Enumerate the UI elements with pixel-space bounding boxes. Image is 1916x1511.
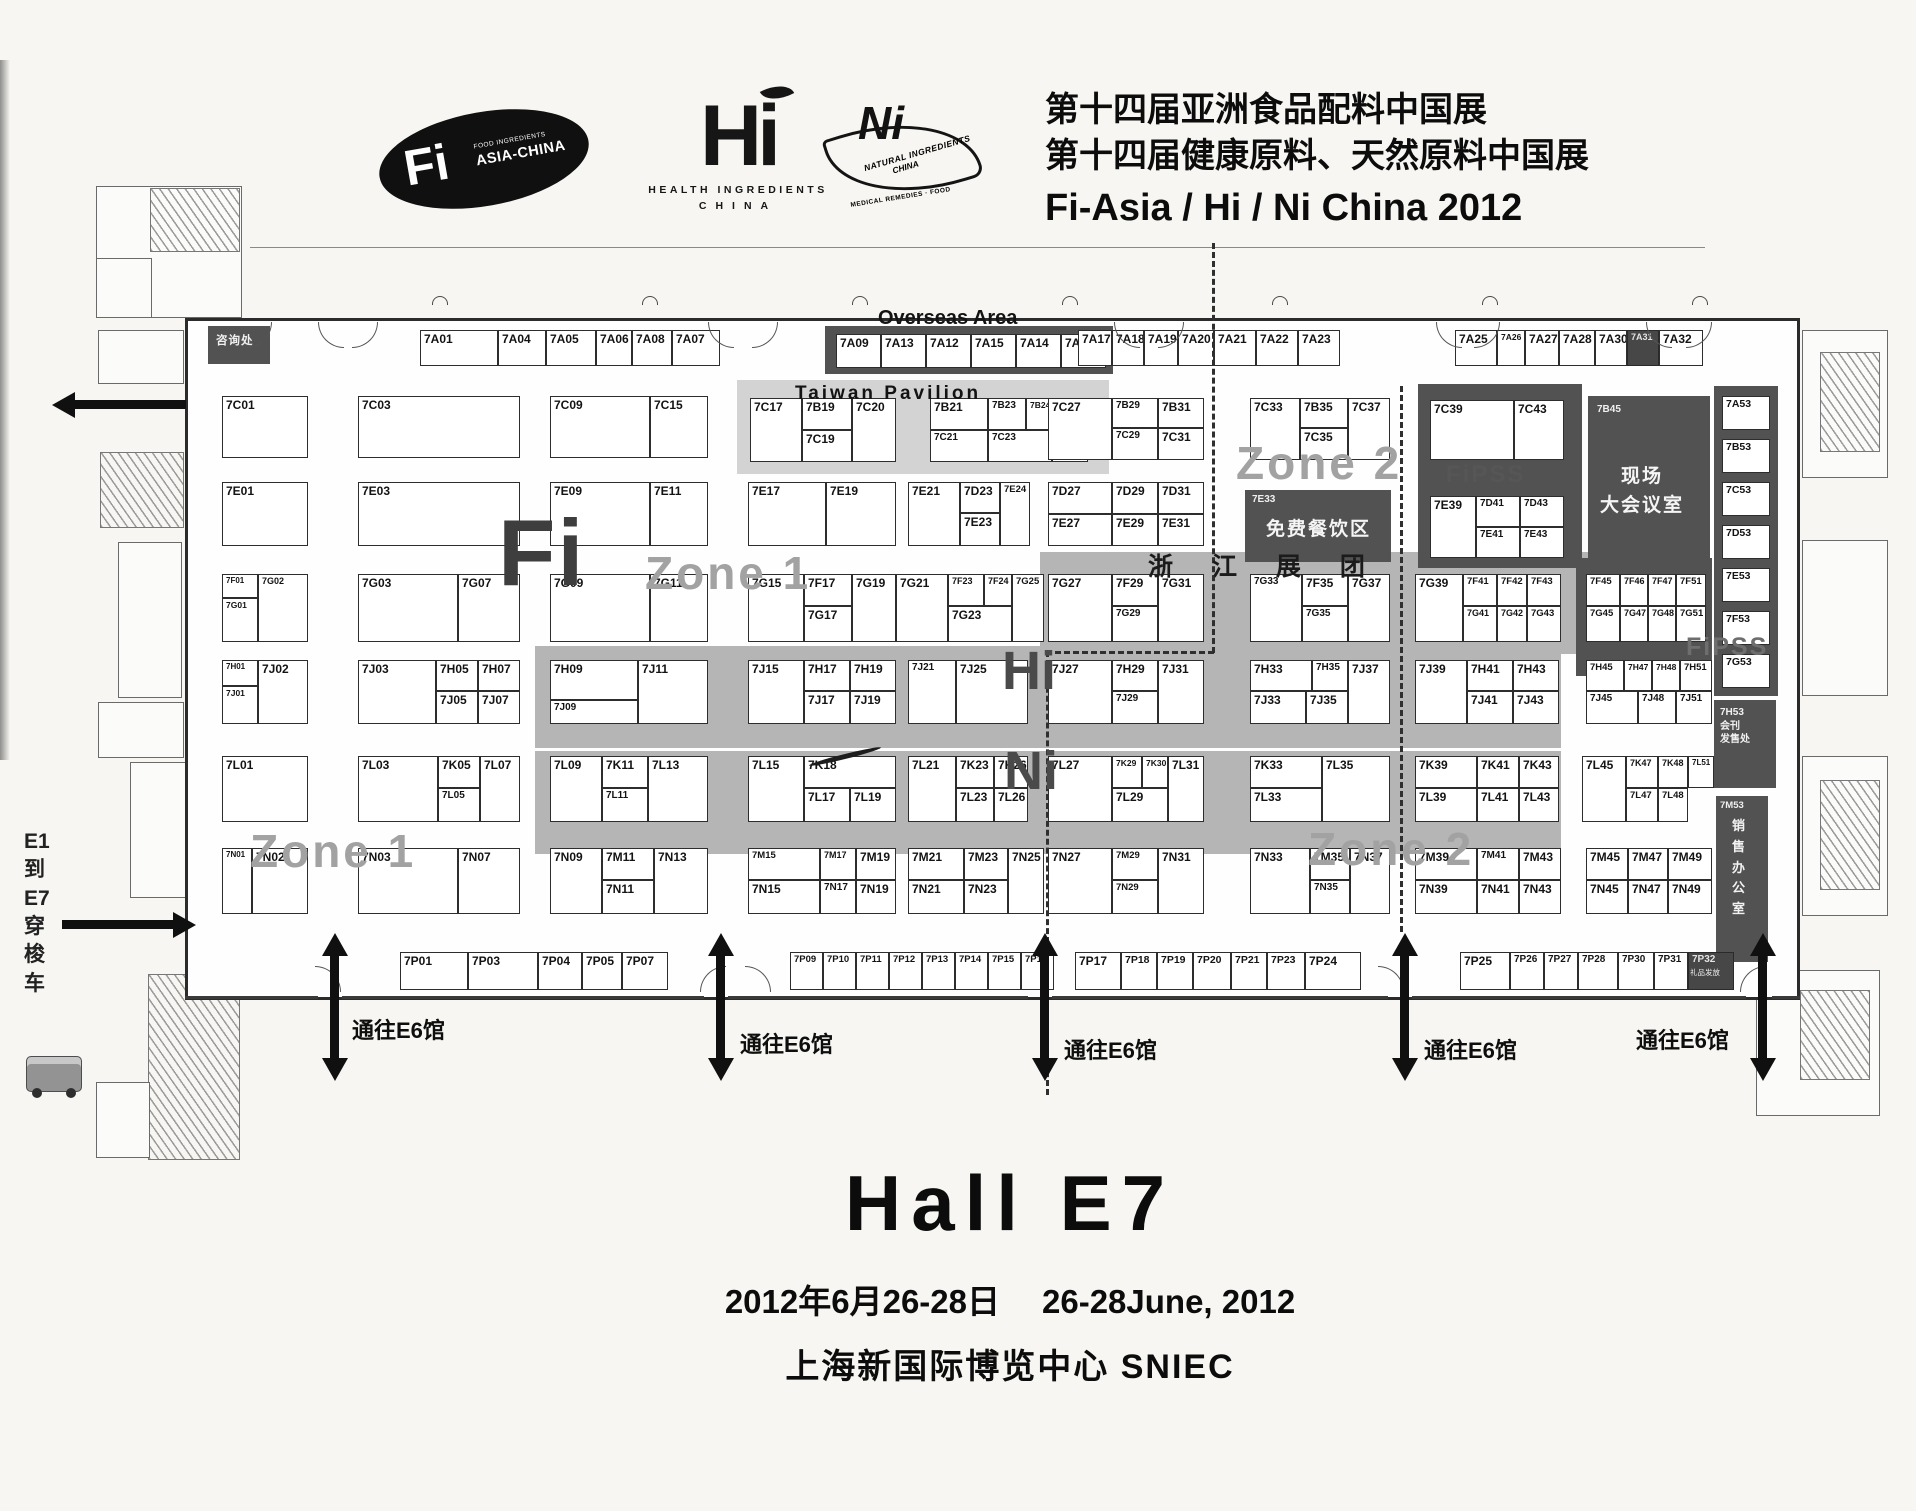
scanned-floorplan-page: Fi FOOD INGREDIENTS ASIA-CHINA Hi HEALTH…: [0, 0, 1916, 1511]
booth-7B31: 7B31: [1158, 398, 1204, 428]
booth-7H41: 7H41: [1467, 660, 1513, 691]
booth-7E24: 7E24: [1000, 482, 1030, 546]
ni-zone-label: Ni: [1004, 744, 1058, 798]
booth-7P24: 7P24: [1305, 952, 1361, 990]
booth-7A21: 7A21: [1214, 330, 1256, 366]
booth-7H07: 7H07: [478, 660, 520, 691]
carc-decor: [1062, 296, 1078, 305]
booth-7M21: 7M21: [908, 848, 964, 880]
footer: Hall E7 2012年6月26-28日26-28June, 2012 上海新…: [640, 1158, 1380, 1388]
booth-7J37: 7J37: [1348, 660, 1390, 724]
booth-7F41: 7F41: [1463, 574, 1497, 606]
booth-7N27: 7N27: [1048, 848, 1112, 914]
dashh-decor: [1046, 651, 1214, 655]
booth-7N07: 7N07: [458, 848, 520, 914]
booth-7G35: 7G35: [1302, 606, 1348, 642]
booth-7L09: 7L09: [550, 756, 602, 822]
booth-7C23: 7C23: [988, 430, 1052, 462]
e6-arrow-1: [330, 942, 339, 1072]
booth-7C15: 7C15: [650, 396, 708, 458]
booth-7A01: 7A01: [420, 330, 498, 366]
booth-7E01: 7E01: [222, 482, 308, 546]
booth-7A22: 7A22: [1256, 330, 1298, 366]
booth-7C39: 7C39: [1430, 400, 1514, 460]
booth-7H19: 7H19: [850, 660, 896, 691]
booth-7A05: 7A05: [546, 330, 596, 366]
booth-7P30: 7P30: [1618, 952, 1654, 990]
e6-arrow-3: [1040, 942, 1049, 1072]
booth-7F24: 7F24: [984, 574, 1012, 606]
carc-decor: [1482, 296, 1498, 305]
booth-7E29: 7E29: [1112, 514, 1158, 546]
booth-7C20: 7C20: [852, 398, 896, 462]
booth-7P01: 7P01: [400, 952, 468, 990]
booth-7E23: 7E23: [960, 513, 1000, 546]
wseg-decor: [1412, 996, 1746, 999]
shuttle-arrow-west: [62, 400, 186, 409]
booth-7B35: 7B35: [1300, 398, 1348, 428]
booth-7C19: 7C19: [802, 430, 852, 462]
booth-7G47: 7G47: [1620, 606, 1648, 642]
to-hall-e6-label-5: 通往E6馆: [1636, 1028, 1729, 1055]
booth-7B45-label: 7B45: [1597, 404, 1621, 416]
booth-7N13: 7N13: [654, 848, 708, 914]
booth-7K11: 7K11: [602, 756, 648, 788]
booth-7D31: 7D31: [1158, 482, 1204, 514]
ob-decor: [98, 702, 184, 758]
booth-7C31: 7C31: [1158, 428, 1204, 460]
booth-7G33: 7G33: [1250, 574, 1302, 642]
zhejiang-delegation-label: 浙 江 展 团: [1148, 552, 1381, 583]
booth-7E41: 7E41: [1476, 527, 1520, 558]
booth-7P03: 7P03: [468, 952, 538, 990]
booth-7K39: 7K39: [1415, 756, 1477, 788]
sales-office-label: 销 售 办 公 室: [1732, 816, 1745, 920]
gift-desk-label: 礼品发放: [1690, 968, 1720, 977]
booth-7H48: 7H48: [1652, 660, 1680, 691]
booth-7J21: 7J21: [908, 660, 956, 724]
wseg-decor: [1052, 996, 1388, 999]
booth-7G29: 7G29: [1112, 606, 1158, 642]
booth-7A27: 7A27: [1525, 330, 1559, 366]
booth-7E53: 7E53: [1722, 568, 1770, 602]
booth-7E31: 7E31: [1158, 514, 1204, 546]
booth-7P31: 7P31: [1654, 952, 1688, 990]
booth-7P10: 7P10: [823, 952, 856, 990]
booth-7L05: 7L05: [438, 788, 480, 822]
booth-7H45: 7H45: [1586, 660, 1624, 691]
booth-7L35: 7L35: [1322, 756, 1390, 822]
booth-7D23: 7D23: [960, 482, 1000, 513]
booth-7G25: 7G25: [1012, 574, 1044, 642]
booth-7M19: 7M19: [856, 848, 896, 880]
booth-7E11: 7E11: [650, 482, 708, 546]
booth-7E33-label: 7E33: [1252, 494, 1275, 506]
booth-7L23: 7L23: [956, 788, 994, 822]
booth-7K30: 7K30: [1142, 756, 1168, 788]
booth-7N35: 7N35: [1310, 880, 1350, 914]
booth-7P12: 7P12: [889, 952, 922, 990]
ob-decor: [130, 762, 186, 898]
booth-7P09: 7P09: [790, 952, 823, 990]
booth-7J09: 7J09: [550, 700, 638, 724]
fi-zone-label: Fi: [498, 506, 586, 600]
booth-7K48: 7K48: [1658, 756, 1688, 788]
booth-7P14: 7P14: [955, 952, 988, 990]
booth-7N49: 7N49: [1668, 880, 1712, 914]
booth-7C17: 7C17: [750, 398, 802, 462]
booth-7N31: 7N31: [1158, 848, 1204, 914]
ob-decor: [96, 258, 152, 318]
booth-7A13: 7A13: [881, 334, 926, 368]
booth-7P23: 7P23: [1267, 952, 1305, 990]
booth-7N45: 7N45: [1586, 880, 1628, 914]
booth-7L21: 7L21: [908, 756, 956, 822]
booth-7M41: 7M41: [1477, 848, 1519, 880]
booth-7L48: 7L48: [1658, 788, 1688, 822]
booth-7N17: 7N17: [820, 880, 856, 914]
booth-7C01: 7C01: [222, 396, 308, 458]
booth-7A26: 7A26: [1497, 330, 1525, 366]
booth-7P26: 7P26: [1510, 952, 1544, 990]
booth-7K41: 7K41: [1477, 756, 1519, 788]
booth-7A15: 7A15: [971, 334, 1016, 368]
booth-7J48: 7J48: [1638, 691, 1676, 724]
zone1-lower-label: Zone 1: [250, 828, 416, 874]
thin-decor: [250, 247, 1705, 249]
booth-7C53: 7C53: [1722, 482, 1770, 516]
booth-7H35: 7H35: [1312, 660, 1348, 691]
booth-7C03: 7C03: [358, 396, 520, 458]
booth-7K33: 7K33: [1250, 756, 1322, 788]
hatch-decor: [100, 452, 184, 528]
booth-7P28: 7P28: [1578, 952, 1618, 990]
booth-7L51: 7L51: [1688, 756, 1714, 788]
booth-7N29: 7N29: [1112, 880, 1158, 914]
booth-7E03: 7E03: [358, 482, 520, 546]
booth-7K47: 7K47: [1626, 756, 1658, 788]
booth-7L15: 7L15: [748, 756, 804, 822]
booth-7P15: 7P15: [988, 952, 1021, 990]
booth-7H47: 7H47: [1624, 660, 1652, 691]
booth-7A09: 7A09: [836, 334, 881, 368]
booth-7P19: 7P19: [1157, 952, 1193, 990]
booth-7D41: 7D41: [1476, 496, 1520, 527]
booth-7J02: 7J02: [258, 660, 308, 724]
booth-7N11: 7N11: [602, 880, 654, 914]
booth-7M15: 7M15: [748, 848, 820, 880]
booth-7M47: 7M47: [1628, 848, 1668, 880]
wseg-decor: [185, 996, 318, 999]
e6-arrow-4: [1400, 942, 1409, 1072]
booth-7C43: 7C43: [1514, 400, 1564, 460]
booth-7F43: 7F43: [1527, 574, 1561, 606]
booth-7B29: 7B29: [1112, 398, 1158, 428]
booth-7C29: 7C29: [1112, 428, 1158, 460]
booth-7F45: 7F45: [1586, 574, 1620, 606]
booth-7L13: 7L13: [648, 756, 708, 822]
booth-7J41: 7J41: [1467, 691, 1513, 724]
booth-7A17: 7A17: [1078, 330, 1112, 366]
ob-decor: [1802, 540, 1888, 696]
date-en: 26-28June, 2012: [1042, 1283, 1295, 1320]
booth-7J27: 7J27: [1048, 660, 1112, 724]
booth-7K05: 7K05: [438, 756, 480, 788]
booth-7P04: 7P04: [538, 952, 582, 990]
booth-7G31: 7G31: [1158, 574, 1204, 642]
booth-7L47: 7L47: [1626, 788, 1658, 822]
date-line: 2012年6月26-28日26-28June, 2012: [640, 1275, 1380, 1323]
booth-7G39: 7G39: [1415, 574, 1463, 642]
booth-7H05: 7H05: [436, 660, 478, 691]
carc-decor: [852, 296, 868, 305]
booth-7M45: 7M45: [1586, 848, 1628, 880]
fipss-lower-label: FiPSS: [1686, 632, 1768, 663]
booth-7H33: 7H33: [1250, 660, 1312, 691]
booth-7M43: 7M43: [1519, 848, 1561, 880]
booth-7N39: 7N39: [1415, 880, 1477, 914]
to-hall-e6-label-1: 通往E6馆: [352, 1018, 445, 1045]
booth-7P07: 7P07: [622, 952, 668, 990]
fipss-upper-label: FiPSS: [1446, 460, 1525, 489]
date-cn: 2012年6月26-28日: [725, 1283, 1000, 1320]
bus-decor: [26, 1056, 82, 1092]
overseas-area-label: Overseas Area: [878, 306, 1017, 330]
booth-7L41: 7L41: [1477, 788, 1519, 822]
booth-7E43: 7E43: [1520, 527, 1564, 558]
booth-7J03: 7J03: [358, 660, 436, 724]
booth-7G42: 7G42: [1497, 606, 1527, 642]
booth-7A30: 7A30: [1595, 330, 1627, 366]
booth-7E27: 7E27: [1048, 514, 1112, 546]
hatch-decor: [148, 974, 240, 1160]
booth-7A08: 7A08: [632, 330, 672, 366]
booth-7J45: 7J45: [1586, 691, 1638, 724]
booth-7H09: 7H09: [550, 660, 638, 700]
e6-arrow-5: [1758, 942, 1767, 1072]
booth-7L45: 7L45: [1582, 756, 1626, 822]
booth-7N19: 7N19: [856, 880, 896, 914]
booth-7N47: 7N47: [1628, 880, 1668, 914]
booth-7A04: 7A04: [498, 330, 546, 366]
booth-7H51: 7H51: [1680, 660, 1712, 691]
hall-title: Hall E7: [640, 1158, 1380, 1249]
booth-7L07: 7L07: [480, 756, 520, 822]
booth-7F46: 7F46: [1620, 574, 1648, 606]
booth-7L29: 7L29: [1112, 788, 1168, 822]
to-hall-e6-label-3: 通往E6馆: [1064, 1038, 1157, 1065]
booth-7B23: 7B23: [988, 398, 1026, 430]
booth-7K23: 7K23: [956, 756, 994, 788]
booth-7N33: 7N33: [1250, 848, 1310, 914]
booth-7H29: 7H29: [1112, 660, 1158, 691]
carc-decor: [1272, 296, 1288, 305]
booth-7J43: 7J43: [1513, 691, 1559, 724]
booth-7N25: 7N25: [1008, 848, 1044, 914]
booth-7C27: 7C27: [1048, 398, 1112, 460]
booth-7B53: 7B53: [1722, 439, 1770, 473]
booth-7N21: 7N21: [908, 880, 964, 914]
booth-7D27: 7D27: [1048, 482, 1112, 514]
hatch-decor: [150, 188, 240, 252]
booth-7J39: 7J39: [1415, 660, 1467, 724]
booth-7M11: 7M11: [602, 848, 654, 880]
booth-7N01: 7N01: [222, 848, 252, 914]
booth-7N09: 7N09: [550, 848, 602, 914]
booth-7A14: 7A14: [1016, 334, 1061, 368]
booth-7G21: 7G21: [896, 574, 948, 642]
booth-7P20: 7P20: [1193, 952, 1231, 990]
booth-7F01: 7F01: [222, 574, 258, 598]
booth-7M29: 7M29: [1112, 848, 1158, 880]
booth-7G02: 7G02: [258, 574, 308, 642]
booth-7A12: 7A12: [926, 334, 971, 368]
zone2-lower-label: Zone 2: [1308, 826, 1474, 872]
booth-7N23: 7N23: [964, 880, 1008, 914]
booth-7J51: 7J51: [1676, 691, 1712, 724]
booth-7D43: 7D43: [1520, 496, 1564, 527]
booth-7P21: 7P21: [1231, 952, 1267, 990]
booth-7L43: 7L43: [1519, 788, 1559, 822]
booth-7G17: 7G17: [804, 606, 852, 642]
booth-7G03: 7G03: [358, 574, 458, 642]
carc-decor: [1692, 296, 1708, 305]
booth-7J17: 7J17: [804, 691, 850, 724]
booth-7H43: 7H43: [1513, 660, 1559, 691]
booth-7E21: 7E21: [908, 482, 960, 546]
shuttle-bus-label: E1 到 E7 穿 梭 车: [24, 828, 50, 998]
to-hall-e6-label-2: 通往E6馆: [740, 1032, 833, 1059]
booth-7G43: 7G43: [1527, 606, 1561, 642]
booth-7N41: 7N41: [1477, 880, 1519, 914]
hatch-decor: [1820, 780, 1880, 890]
booth-7A06: 7A06: [596, 330, 632, 366]
booth-7F47: 7F47: [1648, 574, 1676, 606]
to-hall-e6-label-4: 通往E6馆: [1424, 1038, 1517, 1065]
dashv-decor: [1212, 243, 1216, 653]
booth-7J05: 7J05: [436, 691, 478, 724]
booth-7D29: 7D29: [1112, 482, 1158, 514]
edge-decor: [0, 60, 10, 760]
booth-7F23: 7F23: [948, 574, 984, 606]
carc-decor: [432, 296, 448, 305]
booth-7J31: 7J31: [1158, 660, 1204, 724]
booth-7E17: 7E17: [748, 482, 826, 546]
hi-zone-label: Hi: [1002, 644, 1056, 698]
booth-7P11: 7P11: [856, 952, 889, 990]
booth-7M49: 7M49: [1668, 848, 1712, 880]
booth-7G27: 7G27: [1048, 574, 1112, 642]
booth-7K43: 7K43: [1519, 756, 1559, 788]
booth-7L17: 7L17: [804, 788, 850, 822]
e6-arrow-2: [716, 942, 725, 1072]
booth-7C21: 7C21: [930, 430, 988, 462]
booth-7P25: 7P25: [1460, 952, 1510, 990]
booth-7G41: 7G41: [1463, 606, 1497, 642]
booth-7P18: 7P18: [1121, 952, 1157, 990]
ob-decor: [118, 542, 182, 698]
carc-decor: [642, 296, 658, 305]
booth-7L01: 7L01: [222, 756, 308, 822]
booth-7L39: 7L39: [1415, 788, 1477, 822]
booth-7A23: 7A23: [1298, 330, 1340, 366]
conference-room-label: 现场 大会议室: [1600, 462, 1684, 521]
booth-7G48: 7G48: [1648, 606, 1676, 642]
booth-7P17: 7P17: [1075, 952, 1121, 990]
booth-7C09: 7C09: [550, 396, 650, 458]
zone1-upper-label: Zone 1: [645, 550, 811, 596]
booth-7J01: 7J01: [222, 686, 258, 724]
booth-7A28: 7A28: [1559, 330, 1595, 366]
booth-7L33: 7L33: [1250, 788, 1322, 822]
booth-7N15: 7N15: [748, 880, 820, 914]
booth-7G19: 7G19: [852, 574, 896, 642]
hatch-decor: [1820, 352, 1880, 452]
booth-7E19: 7E19: [826, 482, 896, 546]
booth-7F42: 7F42: [1497, 574, 1527, 606]
ob-decor: [96, 1082, 150, 1158]
booth-7H17: 7H17: [804, 660, 850, 691]
booth-7D53: 7D53: [1722, 525, 1770, 559]
booth-7K29: 7K29: [1112, 756, 1142, 788]
info-desk-label: 咨询处: [216, 334, 254, 348]
wseg-decor: [1772, 996, 1800, 999]
booth-7J15: 7J15: [748, 660, 804, 724]
booth-7M23: 7M23: [964, 848, 1008, 880]
booth-7J35: 7J35: [1306, 691, 1348, 724]
booth-7N43: 7N43: [1519, 880, 1561, 914]
booth-7J11: 7J11: [638, 660, 708, 724]
wseg-decor: [342, 996, 704, 999]
booth-7F51: 7F51: [1676, 574, 1706, 606]
taiwan-pavilion-label: Taiwan Pavilion: [795, 382, 981, 405]
wseg-decor: [728, 996, 1028, 999]
booth-7L31: 7L31: [1168, 756, 1204, 822]
shuttle-arrow-east: [62, 920, 186, 929]
booth-7P27: 7P27: [1544, 952, 1578, 990]
booth-7L19: 7L19: [850, 788, 896, 822]
booth-7J33: 7J33: [1250, 691, 1306, 724]
booth-7L03: 7L03: [358, 756, 438, 822]
booth-7E39: 7E39: [1430, 496, 1476, 558]
free-dining-label: 免费餐饮区: [1266, 518, 1371, 541]
ob-decor: [98, 330, 184, 384]
booth-7H01: 7H01: [222, 660, 258, 686]
booth-7L11: 7L11: [602, 788, 648, 822]
venue: 上海新国际博览中心 SNIEC: [640, 1339, 1380, 1388]
booth-7A53: 7A53: [1722, 396, 1770, 430]
booth-7J07: 7J07: [478, 691, 520, 724]
booth-7G45: 7G45: [1586, 606, 1620, 642]
booth-7P13: 7P13: [922, 952, 955, 990]
booth-7G01: 7G01: [222, 598, 258, 642]
booth-7M53-label: 7M53: [1720, 800, 1744, 812]
booth-7J19: 7J19: [850, 691, 896, 724]
booth-7G23: 7G23: [948, 606, 1012, 642]
booth-7A20: 7A20: [1178, 330, 1214, 366]
booth-7J29: 7J29: [1112, 691, 1158, 724]
booth-7H53-label: 7H53 会刊 发售处: [1720, 706, 1750, 747]
booth-7M17: 7M17: [820, 848, 856, 880]
booth-7G37: 7G37: [1348, 574, 1390, 642]
zone2-upper-label: Zone 2: [1236, 440, 1402, 486]
hatch-decor: [1800, 990, 1870, 1080]
booth-7P05: 7P05: [582, 952, 622, 990]
